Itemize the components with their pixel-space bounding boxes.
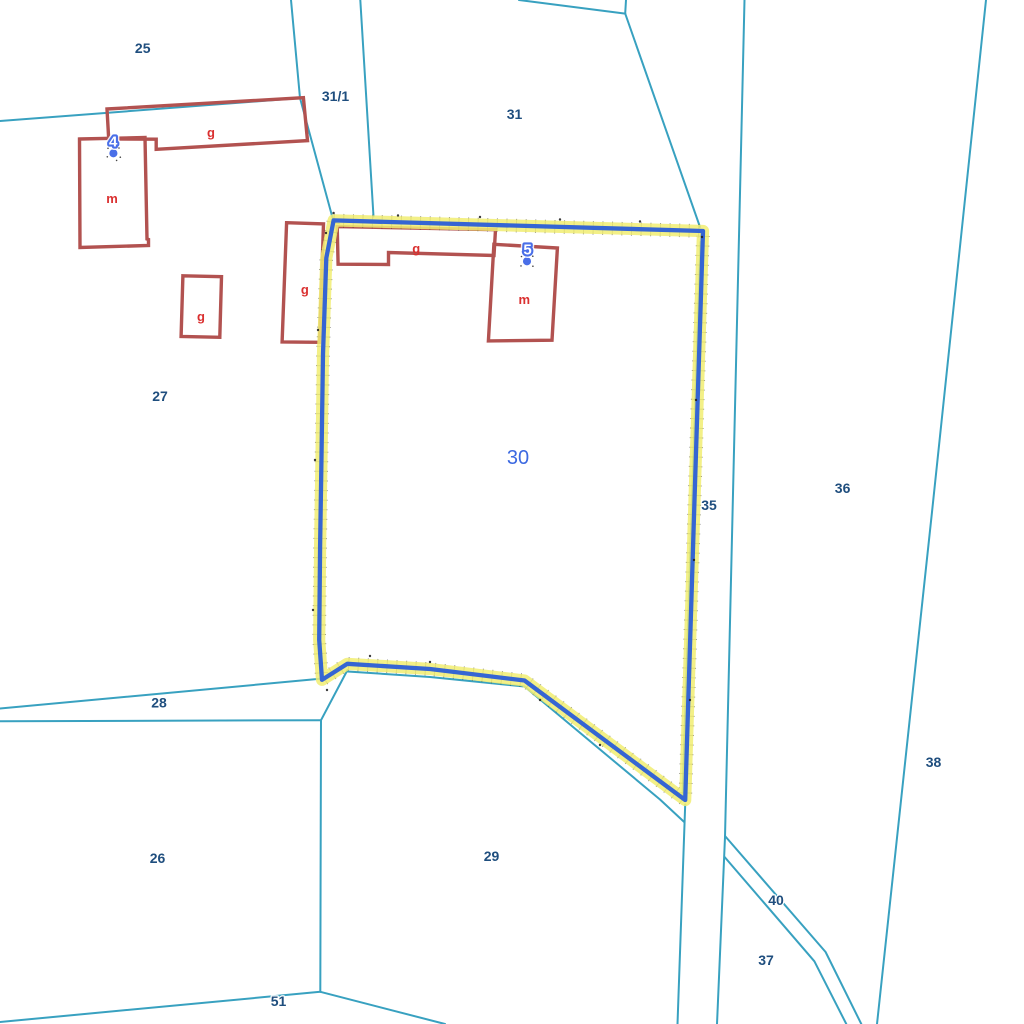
svg-text:5: 5 xyxy=(523,242,531,259)
svg-text:g: g xyxy=(207,125,215,140)
svg-text:40: 40 xyxy=(768,892,784,908)
svg-text:27: 27 xyxy=(152,388,168,404)
svg-text:31: 31 xyxy=(507,106,523,122)
svg-text:g: g xyxy=(197,309,205,324)
svg-text:30: 30 xyxy=(507,447,529,469)
svg-text:35: 35 xyxy=(701,497,717,513)
svg-text:31/1: 31/1 xyxy=(322,88,349,104)
svg-text:29: 29 xyxy=(484,848,500,864)
svg-text:37: 37 xyxy=(758,952,774,968)
svg-text:26: 26 xyxy=(150,850,166,866)
svg-text:4: 4 xyxy=(109,133,118,150)
svg-text:g: g xyxy=(412,241,420,256)
svg-text:28: 28 xyxy=(151,695,167,711)
svg-text:51: 51 xyxy=(271,993,287,1009)
svg-text:m: m xyxy=(106,191,118,206)
svg-text:m: m xyxy=(519,292,531,307)
svg-text:25: 25 xyxy=(135,40,151,56)
svg-text:38: 38 xyxy=(926,754,942,770)
svg-text:36: 36 xyxy=(835,480,851,496)
svg-text:g: g xyxy=(301,282,309,297)
